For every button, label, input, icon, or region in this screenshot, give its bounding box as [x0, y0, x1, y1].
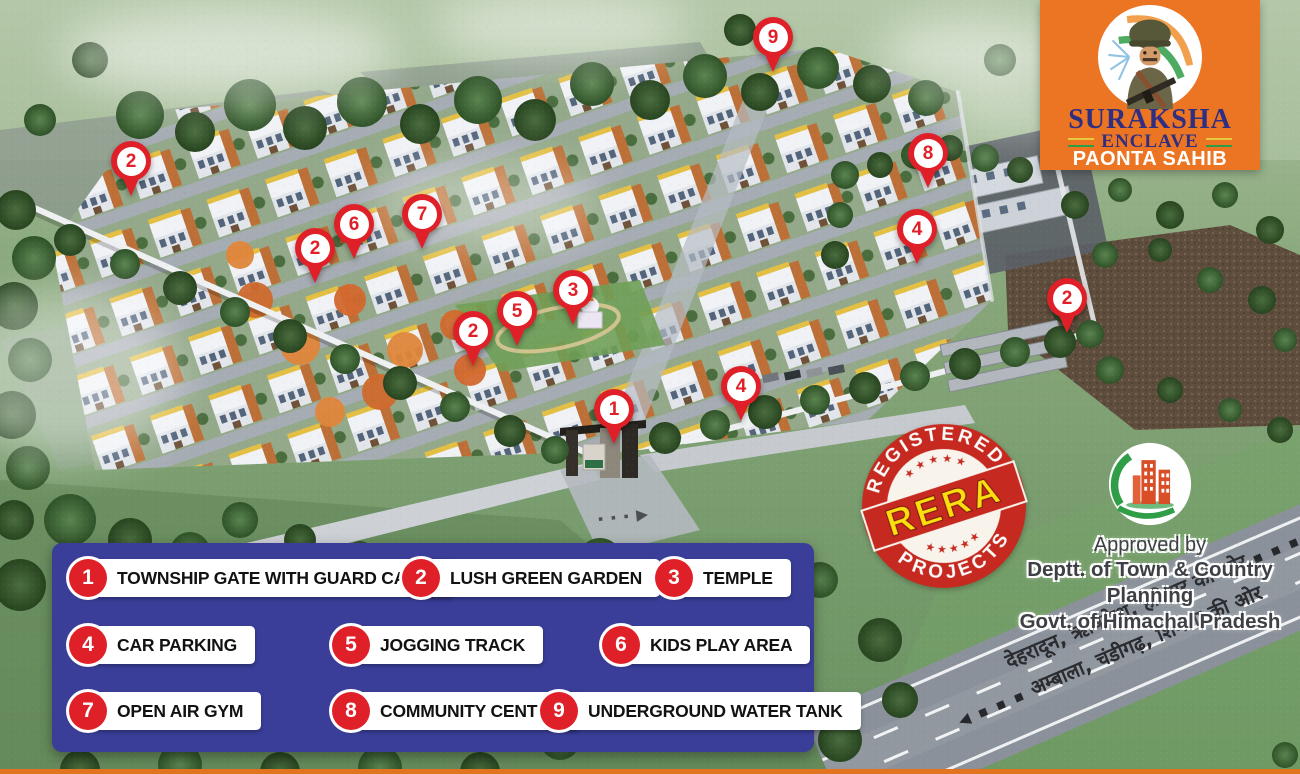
pin-number: 1 [600, 395, 629, 424]
pin-tail [305, 261, 325, 283]
tree [882, 682, 918, 718]
logo-location: PAONTA SAHIB [1040, 148, 1260, 171]
tree [330, 344, 360, 374]
tree [1256, 216, 1284, 244]
tree [24, 104, 56, 136]
tree [337, 77, 387, 127]
tree [1267, 417, 1293, 443]
tree [1096, 356, 1124, 384]
map-pin-5[interactable]: 5 [497, 291, 537, 346]
tree [984, 44, 1016, 76]
tree [224, 79, 276, 131]
tree [54, 224, 86, 256]
legend-label: JOGGING TRACK [380, 635, 525, 656]
pin-tail [344, 237, 364, 259]
project-logo: SURAKSHA ENCLAVE PAONTA SAHIB [1040, 0, 1260, 170]
tree [1273, 328, 1297, 352]
map-pin-2[interactable]: 2 [295, 228, 335, 283]
tree [1148, 238, 1172, 262]
legend-label: TEMPLE [703, 568, 773, 589]
legend-number: 2 [402, 559, 440, 597]
pin-number: 9 [759, 23, 788, 52]
tree [1248, 286, 1276, 314]
legend-item-4: 4CAR PARKING [70, 626, 255, 664]
pin-number: 3 [559, 276, 588, 305]
tree [1272, 742, 1298, 768]
tree [116, 91, 164, 139]
bottom-accent-strip [0, 769, 1300, 774]
approval-badge: Approved by Deptt. of Town & Country Pla… [1018, 441, 1282, 635]
map-pin-2[interactable]: 2 [111, 141, 151, 196]
tree [800, 385, 830, 415]
tree [220, 297, 250, 327]
pin-number: 6 [340, 210, 369, 239]
tree [1197, 267, 1223, 293]
pin-number: 8 [914, 139, 943, 168]
pin-tail [918, 166, 938, 188]
pin-tail [763, 50, 783, 72]
tree [1092, 242, 1118, 268]
map-pin-4[interactable]: 4 [721, 366, 761, 421]
tree [541, 436, 569, 464]
pin-tail [1057, 311, 1077, 333]
pin-number: 2 [459, 317, 488, 346]
tree [649, 422, 681, 454]
tree [1061, 191, 1089, 219]
tree [849, 372, 881, 404]
tree [858, 618, 902, 662]
pin-tail [731, 399, 751, 421]
tree [853, 65, 891, 103]
pin-tail [907, 242, 927, 264]
pin-number: 2 [301, 234, 330, 263]
pin-number: 2 [117, 147, 146, 176]
map-pin-2[interactable]: 2 [1047, 278, 1087, 333]
legend-item-5: 5JOGGING TRACK [333, 626, 543, 664]
tree [683, 54, 727, 98]
tree [971, 144, 999, 172]
approval-line-2: Deptt. of Town & Country Planning [1018, 557, 1282, 609]
legend-number: 1 [69, 559, 107, 597]
map-pin-1[interactable]: 1 [594, 389, 634, 444]
legend-label: OPEN AIR GYM [117, 701, 243, 722]
tree [1218, 398, 1242, 422]
tree [827, 202, 853, 228]
tree [283, 106, 327, 150]
tree [1007, 157, 1033, 183]
map-pin-4[interactable]: 4 [897, 209, 937, 264]
legend-label: KIDS PLAY AREA [650, 635, 792, 656]
legend-item-7: 7OPEN AIR GYM [70, 692, 261, 730]
tricolor-rule [1068, 138, 1094, 147]
tree [8, 338, 52, 382]
tree [383, 366, 417, 400]
legend-label: CAR PARKING [117, 635, 237, 656]
legend-label: UNDERGROUND WATER TANK [588, 701, 843, 722]
pin-tail [412, 227, 432, 249]
tree [741, 73, 779, 111]
legend-number: 9 [540, 692, 578, 730]
map-pin-3[interactable]: 3 [553, 270, 593, 325]
legend-number: 8 [332, 692, 370, 730]
pin-number: 2 [1053, 284, 1082, 313]
tree [44, 494, 96, 546]
tree [1000, 337, 1030, 367]
pin-tail [563, 303, 583, 325]
tree [1108, 178, 1132, 202]
tree [821, 241, 849, 269]
pin-number: 7 [408, 200, 437, 229]
approval-line-3: Govt. of Himachal Pradesh [1018, 609, 1282, 635]
map-pin-8[interactable]: 8 [908, 133, 948, 188]
tree [797, 47, 839, 89]
pin-tail [604, 422, 624, 444]
tree [1156, 201, 1184, 229]
legend-item-1: 1TOWNSHIP GATE WITH GUARD CABIN [70, 559, 454, 597]
legend-item-6: 6KIDS PLAY AREA [603, 626, 810, 664]
legend-item-2: 2LUSH GREEN GARDEN [403, 559, 660, 597]
tree [1157, 377, 1183, 403]
map-pin-7[interactable]: 7 [402, 194, 442, 249]
legend-item-3: 3TEMPLE [656, 559, 791, 597]
legend-number: 6 [602, 626, 640, 664]
tree [494, 415, 526, 447]
site-map-poster: 9 2 8 4 7 6 2 3 5 2 2 4 1 ▪ ▪ ▪ ▶ 1TOWNS… [0, 0, 1300, 774]
legend-label: TOWNSHIP GATE WITH GUARD CABIN [117, 568, 436, 589]
tree [163, 271, 197, 305]
tree [273, 319, 307, 353]
pin-number: 4 [903, 215, 932, 244]
tricolor-rule [1206, 138, 1232, 147]
legend-number: 3 [655, 559, 693, 597]
tree [867, 152, 893, 178]
tree [908, 80, 944, 116]
legend-number: 7 [69, 692, 107, 730]
pin-number: 5 [503, 297, 532, 326]
tree [222, 502, 258, 538]
pin-tail [463, 344, 483, 366]
pin-tail [121, 174, 141, 196]
tree [1212, 182, 1238, 208]
tree [400, 104, 440, 144]
tree [949, 348, 981, 380]
map-pin-9[interactable]: 9 [753, 17, 793, 72]
tree [440, 392, 470, 422]
tree [6, 446, 50, 490]
tree [831, 161, 859, 189]
tree [72, 42, 108, 78]
pin-tail [507, 324, 527, 346]
town-planning-icon [1107, 441, 1193, 527]
pin-number: 4 [727, 372, 756, 401]
tree [900, 361, 930, 391]
approval-line-1: Approved by [1018, 534, 1282, 557]
legend-label: COMMUNITY CENTRE [380, 701, 561, 722]
legend-item-9: 9UNDERGROUND WATER TANK [541, 692, 861, 730]
tree [724, 14, 756, 46]
legend-label: LUSH GREEN GARDEN [450, 568, 642, 589]
tree [570, 62, 614, 106]
legend-number: 5 [332, 626, 370, 664]
legend-number: 4 [69, 626, 107, 664]
map-pin-6[interactable]: 6 [334, 204, 374, 259]
tree [12, 236, 56, 280]
soldier-emblem-icon [1098, 5, 1202, 109]
tree [454, 76, 502, 124]
map-pin-2[interactable]: 2 [453, 311, 493, 366]
tree [110, 249, 140, 279]
legend-panel: 1TOWNSHIP GATE WITH GUARD CABIN 2LUSH GR… [52, 543, 814, 752]
tree [175, 112, 215, 152]
tree [630, 80, 670, 120]
tree [514, 99, 556, 141]
